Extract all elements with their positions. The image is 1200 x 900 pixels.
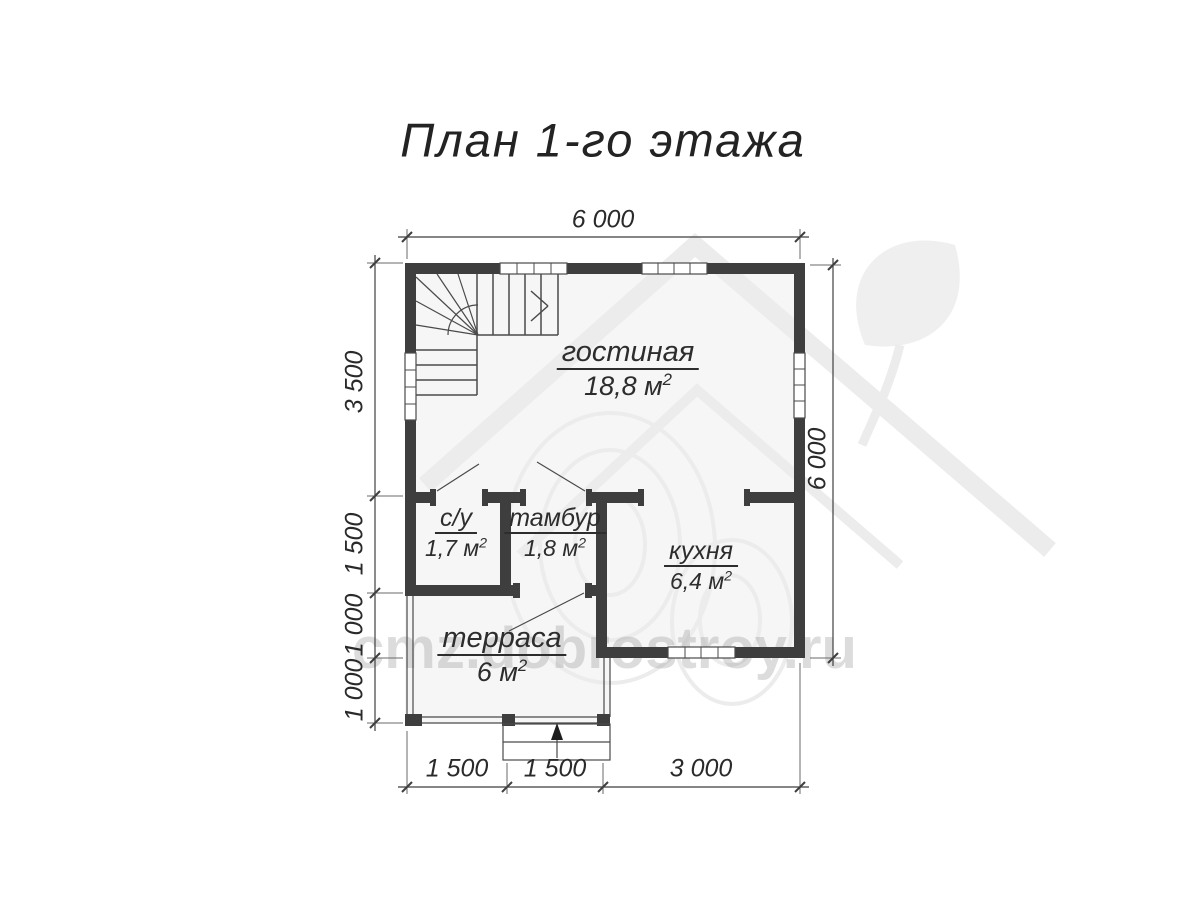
window-left	[405, 353, 416, 420]
room-label-terrace: терраса 6 м2	[437, 622, 566, 690]
room-area: 6,4 м2	[670, 568, 732, 594]
window-top-left	[500, 263, 567, 274]
room-name: тамбур	[504, 505, 606, 534]
room-name: кухня	[664, 538, 738, 567]
window-top-right	[642, 263, 707, 274]
window-kitchen	[668, 647, 735, 658]
room-area: 1,8 м2	[524, 535, 586, 561]
dimension-label-right-height: 6 000	[804, 428, 833, 491]
dimension-label-left-4: 1 000	[341, 659, 370, 722]
dimension-label-bottom-3: 3 000	[670, 755, 733, 784]
floor-plan-drawing: cmz.dobrostroy.ru	[0, 0, 1200, 900]
room-area: 6 м2	[477, 657, 527, 687]
dimension-label-left-3: 1 000	[341, 594, 370, 657]
room-name: гостиная	[557, 337, 699, 370]
room-label-kitchen: кухня 6,4 м2	[664, 537, 738, 596]
dimension-label-left-1: 3 500	[341, 351, 370, 414]
dimension-label-top-width: 6 000	[572, 206, 635, 235]
entrance-arrow-icon	[551, 723, 563, 758]
room-area: 18,8 м2	[584, 371, 672, 401]
dimension-label-bottom-1: 1 500	[426, 755, 489, 784]
dimension-label-left-2: 1 500	[341, 513, 370, 576]
room-label-wc: с/у 1,7 м2	[425, 504, 487, 563]
room-label-vestibule: тамбур 1,8 м2	[504, 504, 606, 563]
room-area: 1,7 м2	[425, 535, 487, 561]
room-label-living: гостиная 18,8 м2	[557, 336, 699, 404]
dimension-label-bottom-2: 1 500	[524, 755, 587, 784]
room-name: терраса	[437, 623, 566, 656]
window-right	[794, 353, 805, 418]
floor-plan-page: План 1-го этажа cmz.dobrostroy.ru	[0, 0, 1200, 900]
room-name: с/у	[435, 505, 477, 534]
